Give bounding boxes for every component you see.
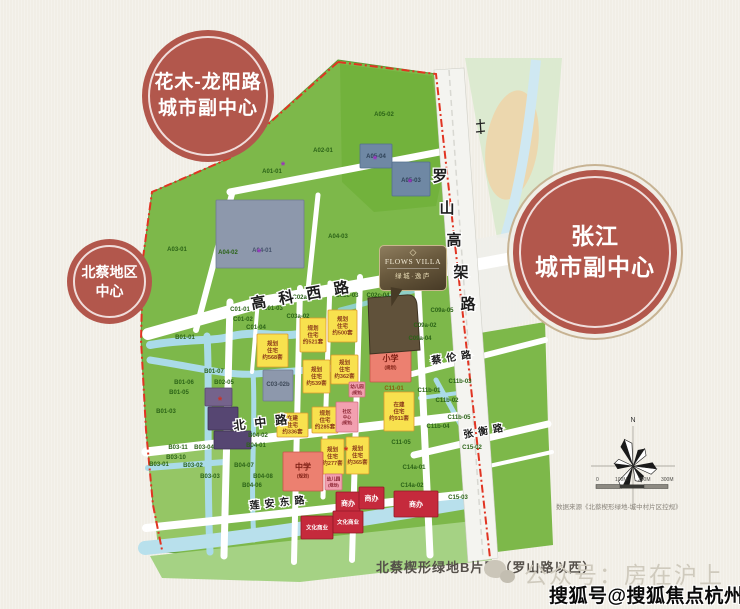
block-label: 中学 [295,462,311,472]
block-label: (规划) [342,419,353,425]
logo-divider [387,268,438,269]
road-label: 罗 [432,168,447,185]
block-label: 小学 [382,353,399,363]
plot-code-label: B02-05 [214,380,234,386]
plot-code-label: A01-01 [262,169,282,175]
block-label: (规划) [352,389,363,395]
zhangjiang-line2: 城市副中心 [535,252,655,283]
scale-tick-100: 100M [615,477,628,483]
plot-code-label: C01-01 [230,307,250,313]
block-label: 住宅 [337,322,349,330]
block-label: 约500套 [332,329,353,337]
block-label: 商办 [409,499,423,508]
compass-north-label: N [630,417,635,424]
landmark-marker: * [408,177,413,189]
plot-code-label: A03-01 [167,247,187,253]
block-label: 住宅 [311,372,323,380]
plot-code-label: B01-03 [156,409,176,415]
block-label: 约521套 [303,338,324,346]
block-label: (规划) [328,481,339,487]
scale-tick-300: 300M [661,477,674,483]
block-label: 约336套 [282,428,303,436]
road-label: 架 [452,264,468,281]
block-label: 约362套 [334,372,355,380]
block-label: 住宅 [352,451,364,459]
plot-code-label: C02c-04 [366,293,390,299]
landmark-marker: * [218,395,223,407]
plot-code-label: C11-05 [391,440,411,446]
plot-code-label: C11b-05 [447,415,471,421]
plot-code-label: B01-01 [175,335,195,341]
block-label: 住宅 [267,346,279,354]
block-label: 规划 [307,324,319,332]
block-label: 住宅 [393,407,405,415]
block-label: 规划 [337,315,349,323]
plot-code-label: B03-01 [149,462,169,468]
plot-code-label: B03-04 [194,445,214,451]
zhangjiang-line1: 张江 [571,221,619,252]
data-source-note: 数据来源《北蔡楔形绿地-城中村片区控规》 [556,501,682,511]
block-label: 在建 [393,401,405,409]
road-label: 高 [446,231,461,249]
plot-code-label: C09a-05 [430,308,454,314]
plot-code-label: B01-05 [169,390,189,396]
scale-tick-0: 0 [596,477,599,483]
flows-villa-title: FLOWS VILLA [380,257,446,266]
plot-code-label: C03-02b [266,382,290,388]
block-label: 规划 [311,366,323,374]
block-label: 住宅 [319,416,331,424]
wechat-icon [484,558,518,588]
plot-code-label: B04-01 [246,443,266,449]
plot-code-label: B03-03 [200,474,220,480]
plot-code-label: B01-07 [204,369,224,375]
landmark-marker: * [281,160,286,172]
huamu-subcenter-bubble: 花木-龙阳路 城市副中心 [142,30,274,162]
plot-code-label: C11b-04 [426,424,450,430]
block-label: 住宅 [327,452,339,460]
block-label: 约539套 [306,379,327,387]
flows-villa-diamond-icon: ◇ [380,248,446,257]
plot-code-label: B03-11 [168,445,188,451]
sohu-watermark: 搜狐号@搜狐焦点杭州站 [549,581,740,608]
plot-code-label: C14a-01 [402,465,426,471]
block-label: 约911套 [389,414,409,422]
plot-code-label: A05-02 [374,112,394,118]
plot-code-label: B04-06 [242,483,262,489]
block-label: 约568套 [262,353,283,361]
plot-code-label: B04-02 [248,433,268,439]
plot-code-label: A02-01 [313,148,333,154]
plot-code-label: C01-04 [246,325,266,331]
block-label: 规划 [352,445,364,453]
landmark-marker: * [344,445,349,457]
compass-rose: N [591,417,675,510]
block-label: 中心 [343,413,351,419]
plot-code-label: B04-07 [234,463,254,469]
landmark-marker: * [257,247,262,259]
landmark-marker: * [373,154,378,166]
plot-code-label: B01-06 [174,380,194,386]
huamu-line2: 城市副中心 [158,96,258,122]
block-label: 文化商业 [337,518,360,526]
block-label: 约365套 [347,458,368,466]
plot-code-label: C11b-02 [435,398,459,404]
plot-code-label: A04-02 [218,250,238,256]
plot-code-label: C14a-02 [400,483,424,489]
plot-code-label: C11b-01 [417,388,441,394]
plot-code-label: C09a-02 [413,323,437,329]
block-label: 住宅 [307,331,319,339]
beicai-line1: 北蔡地区 [82,263,138,282]
plot-code-label: C15-03 [448,495,468,501]
block-label: 商办 [365,493,379,502]
flows-villa-cn-name: 绿城·逸庐 [380,270,446,280]
beicai-line2: 中心 [96,282,124,301]
plot-code-label: B04-08 [253,474,273,480]
plot-code-label: A04-01 [252,248,272,254]
block-label: 住宅 [339,365,351,373]
planning-map-page: 规划住宅约500套规划住宅约521套规划住宅约568套规划住宅约362套规划住宅… [0,0,740,609]
scale-tick-200: 200M [638,477,651,483]
plot-code-label: C15-02 [462,445,482,451]
road-label: 山 [439,200,454,217]
block-label: 商办 [341,498,355,507]
plot-code-label: C11-01 [384,386,404,392]
plot-code-label: C01-02 [233,317,253,323]
plot-code-label: C03a-02 [286,314,310,320]
beicai-center-bubble: 北蔡地区 中心 [67,239,152,324]
plot-code-label: B03-10 [166,455,186,461]
plot-code-label: C11b-03 [448,379,472,385]
block-label: 规划 [319,409,331,417]
block-label: 约277套 [322,459,343,467]
block-label: 约285套 [315,423,336,431]
huamu-line1: 花木-龙阳路 [154,70,261,96]
block-label: (规划) [297,473,309,480]
block-label: (规划) [385,364,397,371]
block-label: 文化商业 [306,523,329,531]
block-label: 规划 [327,446,339,454]
block-label: 规划 [339,359,351,367]
road-label: 路 [460,295,476,313]
plot-code-label: A04-03 [328,234,348,240]
plot-code-label: B03-02 [183,463,203,469]
plot-code-label: C09a-04 [408,336,432,342]
block-label: 规划 [267,340,279,348]
zhangjiang-subcenter-bubble: 张江 城市副中心 [513,170,677,334]
flows-villa-logo-pin: ◇ FLOWS VILLA 绿城·逸庐 [379,245,447,291]
